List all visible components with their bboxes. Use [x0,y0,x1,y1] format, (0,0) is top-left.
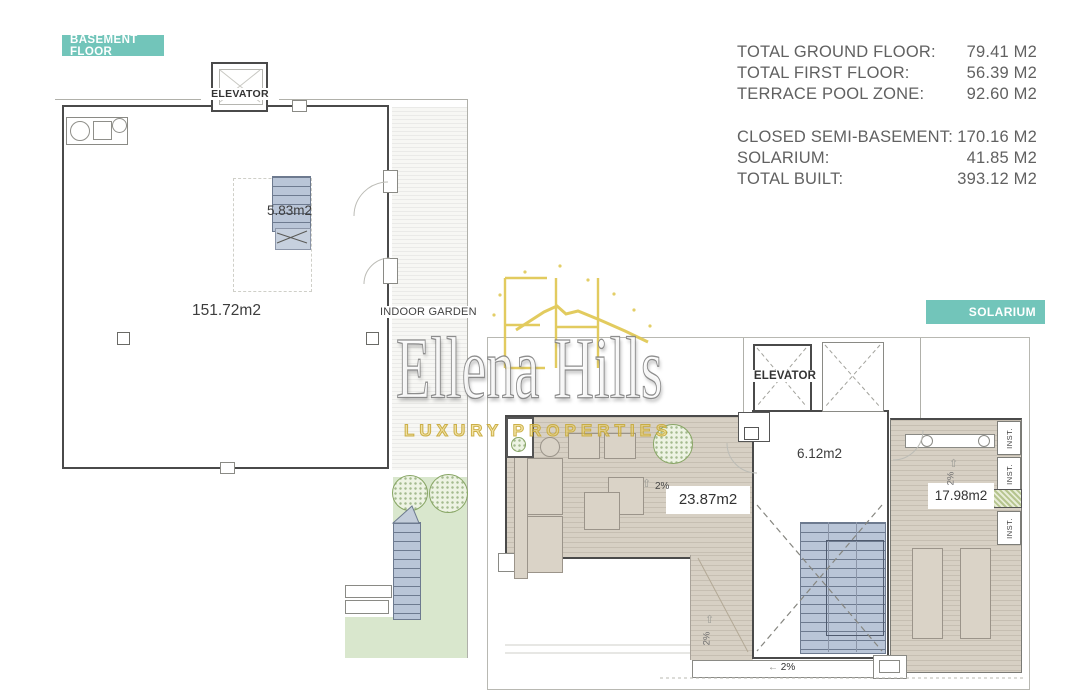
stair-rail [826,540,884,636]
area-label: SOLARIUM: [737,148,830,169]
solarium-elevator-label: ELEVATOR [748,370,822,382]
inst-green-unit [992,489,1022,508]
solarium-badge-label: SOLARIUM [969,305,1036,319]
retaining-wall [345,600,389,614]
garden-wall-opening [383,170,398,193]
monogram-dots [492,264,651,327]
basement-main-area-label: 151.72m2 [192,302,261,320]
slope-value: 2% [781,662,795,673]
area-label: TOTAL FIRST FLOOR: [737,63,910,84]
sun-lounger [912,548,943,639]
slope-arrow-icon: ⇧ [705,615,714,626]
sofa-seat [527,516,563,573]
area-label: TOTAL GROUND FLOOR: [737,42,936,63]
basement-main-room [62,105,389,469]
inst-box: INST. [997,457,1021,491]
basement-stairs-area-label: 5.83m2 [267,203,312,218]
column [366,332,379,345]
landing-box-inner [879,660,900,673]
basement-elevator-label: ELEVATOR [201,88,279,100]
inst-box: INST. [997,421,1021,455]
inst-label: INST. [1005,518,1014,539]
side-table [540,437,560,457]
area-label: CLOSED SEMI-BASEMENT: [737,127,953,148]
basement-right-boundary [467,99,468,658]
inst-label: INST. [1005,464,1014,485]
area-label: TOTAL BUILT: [737,169,843,190]
garden-wall-opening [383,258,398,284]
dryer-icon [93,121,112,140]
area-row: TOTAL BUILT: 393.12 M2 [737,169,1037,190]
slope-label: 2% [701,632,712,646]
slope-label: 2% [945,472,956,486]
area-row: SOLARIUM: 41.85 M2 [737,148,1037,169]
slope-label-bottom: ← 2% [768,662,795,673]
sofa-seat [527,458,563,515]
inst-box: INST. [997,511,1021,545]
washer-icon [70,121,90,141]
area-value: 79.41 M2 [967,42,1037,63]
area-value: 92.60 M2 [967,84,1037,105]
left-arrow-icon: ← [768,662,781,673]
area-value: 41.85 M2 [967,148,1037,169]
basement-floor-badge: BASEMENT FLOOR [62,35,164,56]
area-value: 393.12 M2 [957,169,1037,190]
area-row: TOTAL FIRST FLOOR: 56.39 M2 [737,63,1037,84]
slope-arrow-icon: ⇧ [949,459,958,470]
sun-lounger [960,548,991,639]
west-terrace-area-label: 23.87m2 [666,486,750,514]
tree-icon [429,474,468,513]
indoor-garden-zone [392,107,467,470]
basement-floor-badge-label: BASEMENT FLOOR [70,34,164,58]
wall-tick [292,100,307,112]
area-label: TERRACE POOL ZONE: [737,84,924,105]
stool-icon [978,435,990,447]
hall-area-label: 6.12m2 [797,446,842,461]
slope-label: 2% [655,481,669,492]
area-summary-table: TOTAL GROUND FLOOR: 79.41 M2 TOTAL FIRST… [737,42,1037,190]
area-value: 170.16 M2 [957,127,1037,148]
sink-icon [112,118,127,133]
basement-stairs-lower [275,228,311,250]
retaining-wall [345,585,392,598]
wall-tick [220,462,235,474]
area-row: TOTAL GROUND FLOOR: 79.41 M2 [737,42,1037,63]
chair [604,433,636,459]
chair [568,433,600,459]
solarium-elevator-shaft-2 [822,342,884,412]
deck-plant-icon [653,424,693,464]
coffee-table [584,492,620,530]
sofa-back [514,452,528,579]
east-terrace-area-label: 17.98m2 [928,483,994,509]
stool-icon [921,435,933,447]
column [117,332,130,345]
solarium-badge: SOLARIUM [926,300,1045,324]
planter-plant-icon [511,437,526,452]
tree-icon [392,475,428,511]
garden-stairs [393,522,421,620]
area-value: 56.39 M2 [967,63,1037,84]
area-row: CLOSED SEMI-BASEMENT: 170.16 M2 [737,127,1037,148]
utility-box-inner [744,427,759,440]
floor-plan-sheet: BASEMENT FLOOR SOLARIUM TOTAL GROUND FLO… [0,0,1080,695]
slope-arrow-icon: ⇧ [642,479,651,490]
indoor-garden-label: INDOOR GARDEN [380,306,472,318]
west-terrace-walkway [690,555,753,660]
area-row: TERRACE POOL ZONE: 92.60 M2 [737,84,1037,105]
garden-area [345,617,393,658]
inst-label: INST. [1005,428,1014,449]
